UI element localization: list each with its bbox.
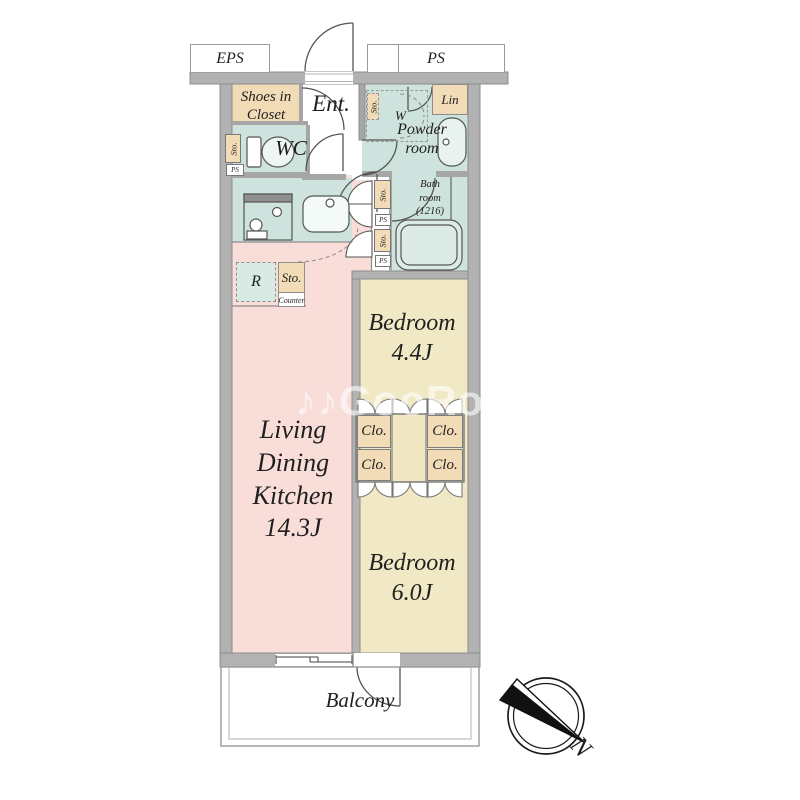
- ps-label: PS: [427, 50, 445, 68]
- ps-shaft-divider: [398, 44, 399, 72]
- entrance-door-arc: [305, 23, 353, 71]
- shoes-closet-label: Shoes in Closet: [232, 88, 300, 124]
- wc-label: WC: [260, 136, 322, 161]
- balcony-label: Balcony: [280, 688, 440, 713]
- linen-closet: Lin: [432, 84, 468, 115]
- ps-shaft: PS: [367, 44, 505, 72]
- ldk-label: Living Dining Kitchen 14.3J: [234, 414, 352, 545]
- eps-shaft: EPS: [190, 44, 270, 72]
- refrigerator-space: R: [236, 262, 276, 302]
- entrance-label: Ent.: [302, 90, 360, 118]
- watermark: ♪♪GooRooM: [295, 377, 547, 425]
- counter-storage: Sto. Counter: [278, 262, 305, 307]
- wc-ps-tag: PS: [226, 164, 244, 176]
- closet-bottom-left: Clo.: [357, 449, 391, 481]
- eps-label: EPS: [216, 50, 244, 68]
- washer-label: W: [395, 108, 406, 124]
- bath-room-label: Bath room (1216): [404, 178, 456, 219]
- washer-sto-tag: Sto.: [367, 93, 379, 120]
- bedroom-small-label: Bedroom 4.4J: [356, 308, 468, 368]
- hall-sto-tag-lower: Sto.: [374, 229, 391, 252]
- bedroom-large-label: Bedroom 6.0J: [356, 548, 468, 608]
- hall-sto-tag-upper: Sto.: [374, 180, 391, 209]
- bathtub: [396, 220, 462, 270]
- floor-plan: EPS PS Shoes in Closet Ent. WC Powder ro…: [0, 0, 800, 800]
- hall-ps-tag-upper: PS: [375, 214, 391, 226]
- counter-label: Counter: [279, 293, 304, 307]
- hall-ps-tag-lower: PS: [375, 255, 391, 267]
- closet-bottom-right: Clo.: [427, 449, 463, 481]
- wc-sto-tag: Sto.: [225, 134, 241, 163]
- counter-sto-label: Sto.: [279, 263, 304, 293]
- toilet-tank: [247, 137, 261, 167]
